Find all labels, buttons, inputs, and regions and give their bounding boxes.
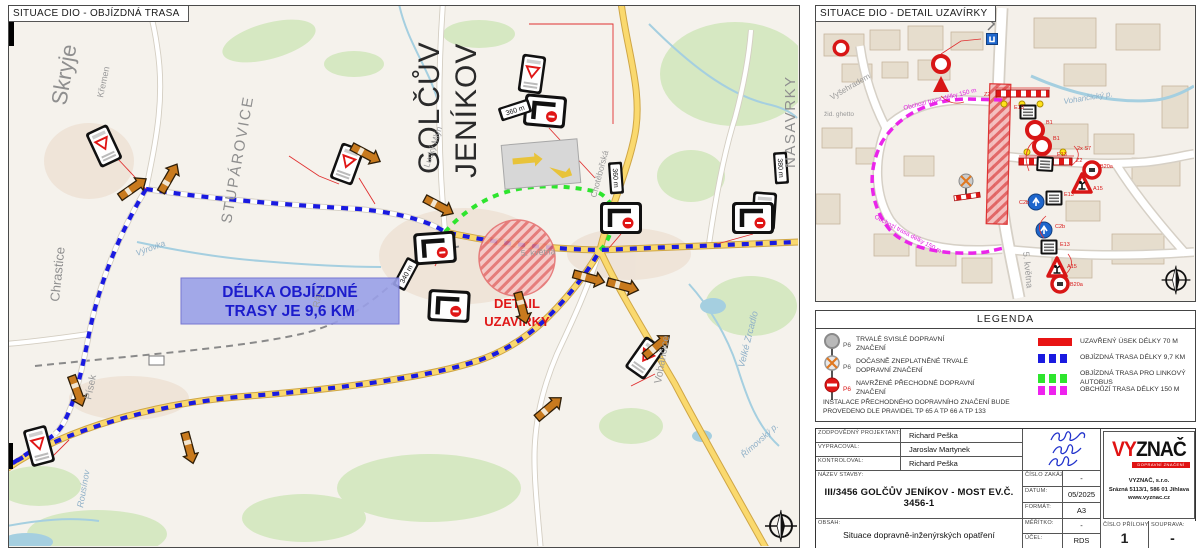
signatures xyxy=(1023,429,1099,469)
name-label: NÁZEV STAVBY: xyxy=(816,471,1022,478)
legend-text-closed: UZAVŘENÝ ÚSEK DÉLKY 70 M xyxy=(1080,338,1178,347)
legend-item-bypass: OBCHŮZÍ TRASA DÉLKY 150 M xyxy=(1038,386,1179,395)
label-ghetto: žid. ghetto xyxy=(824,111,854,118)
label-nasavrky: NASAVRKY xyxy=(782,75,798,168)
legend-text-1: TRVALÉ SVISLÉ DOPRAVNÍ ZNAČENÍ xyxy=(856,336,976,354)
content-cell: OBSAH: Situace dopravně-inženýrských opa… xyxy=(816,519,1023,548)
obsah-value: Situace dopravně-inženýrských opatření xyxy=(816,530,1022,540)
company-logo-box: VYZNAČ DOPRAVNÍ ZNAČENÍ VYZNAČ, s.r.o. S… xyxy=(1103,431,1195,519)
souprava-value: - xyxy=(1149,530,1196,546)
svg-text:DÉLKA OBJÍZDNÉ: DÉLKA OBJÍZDNÉ xyxy=(222,284,358,301)
svg-text:B1: B1 xyxy=(1046,120,1053,126)
company-web: www.vyznac.cz xyxy=(1104,494,1194,503)
ucel-value: RDS xyxy=(1063,534,1100,545)
signature-cell xyxy=(1023,429,1101,471)
drawing-sheet: SITUACE DIO - OBJÍZDNÁ TRASA xyxy=(0,0,1200,555)
closed-section-swatch xyxy=(1038,338,1072,346)
kontroloval-value: Richard Peška xyxy=(901,457,1022,468)
legend: LEGENDA P6 TRVALÉ SVISLÉ DOPRAVNÍ ZNAČEN… xyxy=(815,310,1196,422)
souprava-label: SOUPRAVA: xyxy=(1149,521,1196,528)
zakazka-label: ČÍSLO ZAKÁZKY: xyxy=(1023,471,1062,478)
svg-text:B20a: B20a xyxy=(1100,164,1114,170)
legend-note: INSTALACE PŘECHODNÉHO DOPRAVNÍHO ZNAČENÍ… xyxy=(823,399,1053,417)
priloha-value: 1 xyxy=(1101,530,1148,546)
svg-text:Z2: Z2 xyxy=(984,92,990,98)
legend-item-proposed: P6 NAVRŽENÉ PŘECHODNÉ DOPRAVNÍ ZNAČENÍ xyxy=(823,377,976,401)
invalidated-sign-icon xyxy=(823,355,841,379)
svg-text:A15: A15 xyxy=(1093,186,1103,192)
railway-station xyxy=(149,356,164,365)
legend-item-closed: UZAVŘENÝ ÚSEK DÉLKY 70 M xyxy=(1038,338,1178,347)
projektant-label: ZODPOVĚDNÝ PROJEKTANT: xyxy=(816,429,900,436)
legend-title: LEGENDA xyxy=(816,311,1195,329)
datum-value: 05/2025 xyxy=(1063,487,1100,499)
vypracoval-value: Jaroslav Martynek xyxy=(901,443,1022,454)
svg-text:C2b: C2b xyxy=(1055,224,1065,230)
legend-code-1: P6 xyxy=(843,342,851,349)
souprava-cell: SOUPRAVA: - xyxy=(1149,521,1196,548)
meritko-label: MĚŘÍTKO: xyxy=(1023,519,1062,526)
factory-building xyxy=(501,139,581,189)
format-label: FORMÁT: xyxy=(1023,503,1062,510)
detail-map-panel: SITUACE DIO - DETAIL UZAVÍRKY xyxy=(815,5,1196,302)
svg-text:C2b: C2b xyxy=(1019,200,1029,206)
kontroloval-label: KONTROLOVAL: xyxy=(816,457,900,464)
svg-text:E13: E13 xyxy=(1057,152,1067,158)
project-name-cell: NÁZEV STAVBY: III/3456 GOLČŮV JENÍKOV - … xyxy=(816,471,1023,519)
svg-text:B1: B1 xyxy=(1053,136,1060,142)
zakazka-value: - xyxy=(1063,471,1100,483)
bus-route-swatch xyxy=(1038,374,1072,383)
company-name: VYZNAČ, s.r.o. xyxy=(1104,477,1194,486)
svg-text:360 m: 360 m xyxy=(611,168,619,188)
company-info: VYZNAČ, s.r.o. Srázná 5113/1, 586 01 Jih… xyxy=(1104,477,1194,503)
legend-text-bus: OBJÍZDNÁ TRASA PRO LINKOVÝ AUTOBUS xyxy=(1080,370,1195,388)
detour-route-swatch xyxy=(1038,354,1072,363)
legend-item-bus: OBJÍZDNÁ TRASA PRO LINKOVÝ AUTOBUS xyxy=(1038,370,1195,388)
projektant-value: Richard Peška xyxy=(901,429,1022,440)
proposed-sign-icon xyxy=(823,377,841,401)
logo-tagline: DOPRAVNÍ ZNAČENÍ xyxy=(1132,462,1190,468)
legend-item-detour: OBJÍZDNÁ TRASA DÉLKY 9,7 KM xyxy=(1038,354,1185,363)
svg-text:E13: E13 xyxy=(1064,192,1074,198)
priloha-label: ČÍSLO PŘÍLOHY: xyxy=(1101,521,1148,528)
detour-length-box: DÉLKA OBJÍZDNÉ TRASY JE 9,6 KM xyxy=(181,278,399,324)
legend-text-3: NAVRŽENÉ PŘECHODNÉ DOPRAVNÍ ZNAČENÍ xyxy=(856,380,976,398)
ucel-label: ÚČEL: xyxy=(1023,534,1062,541)
legend-item-permanent: P6 TRVALÉ SVISLÉ DOPRAVNÍ ZNAČENÍ xyxy=(823,333,976,357)
svg-text:TRASY JE 9,6 KM: TRASY JE 9,6 KM xyxy=(225,303,355,320)
detail-map-title: SITUACE DIO - DETAIL UZAVÍRKY xyxy=(816,6,996,22)
datum-label: DATUM: xyxy=(1023,487,1062,494)
priloha-cell: ČÍSLO PŘÍLOHY: 1 xyxy=(1101,521,1149,548)
legend-text-2: DOČASNĚ ZNEPLATNĚNÉ TRVALÉ DOPRAVNÍ ZNAČ… xyxy=(856,358,976,376)
meritko-value: - xyxy=(1063,519,1100,530)
obsah-label: OBSAH: xyxy=(816,519,1022,526)
vypracoval-label: VYPRACOVAL: xyxy=(816,443,900,450)
label-jenikov: JENÍKOV xyxy=(450,43,483,178)
legend-item-invalidated: P6 DOČASNĚ ZNEPLATNĚNÉ TRVALÉ DOPRAVNÍ Z… xyxy=(823,355,976,379)
detail-map: Z2 E13 B1 B1 E13 Z2 2x S7 C2b E13 A15 B2… xyxy=(816,6,1194,300)
bypass-route-swatch xyxy=(1038,386,1072,395)
svg-text:E13: E13 xyxy=(1060,242,1070,248)
format-value: A3 xyxy=(1063,503,1100,515)
legend-code-2: P6 xyxy=(843,364,851,371)
legend-text-bypass: OBCHŮZÍ TRASA DÉLKY 150 M xyxy=(1080,386,1179,395)
title-block: ZODPOVĚDNÝ PROJEKTANT: Richard Peška VYP… xyxy=(815,428,1196,548)
company-address: Srázná 5113/1, 586 01 Jihlava xyxy=(1104,486,1194,495)
project-name: III/3456 GOLČŮV JENÍKOV - MOST EV.Č. 345… xyxy=(816,487,1022,509)
overview-map-title: SITUACE DIO - OBJÍZDNÁ TRASA xyxy=(9,6,189,22)
svg-text:E13: E13 xyxy=(1014,105,1024,111)
fold-mark-bottom xyxy=(9,443,13,469)
svg-text:B20a: B20a xyxy=(1070,282,1084,288)
legend-text-detour: OBJÍZDNÁ TRASA DÉLKY 9,7 KM xyxy=(1080,354,1185,363)
overview-map-panel: SITUACE DIO - OBJÍZDNÁ TRASA xyxy=(8,5,800,548)
svg-text:2x S7: 2x S7 xyxy=(1077,146,1091,152)
overview-map: DETAIL UZAVÍRKY xyxy=(9,6,798,546)
legend-code-3: P6 xyxy=(843,386,851,393)
permanent-sign-icon xyxy=(823,333,841,357)
closure-detail-circle xyxy=(479,220,555,296)
svg-text:Z2: Z2 xyxy=(1076,158,1082,164)
svg-text:A15: A15 xyxy=(1067,264,1077,270)
company-logo: VYZNAČ xyxy=(1108,438,1191,462)
label-kvetna: 5. května xyxy=(521,246,556,258)
